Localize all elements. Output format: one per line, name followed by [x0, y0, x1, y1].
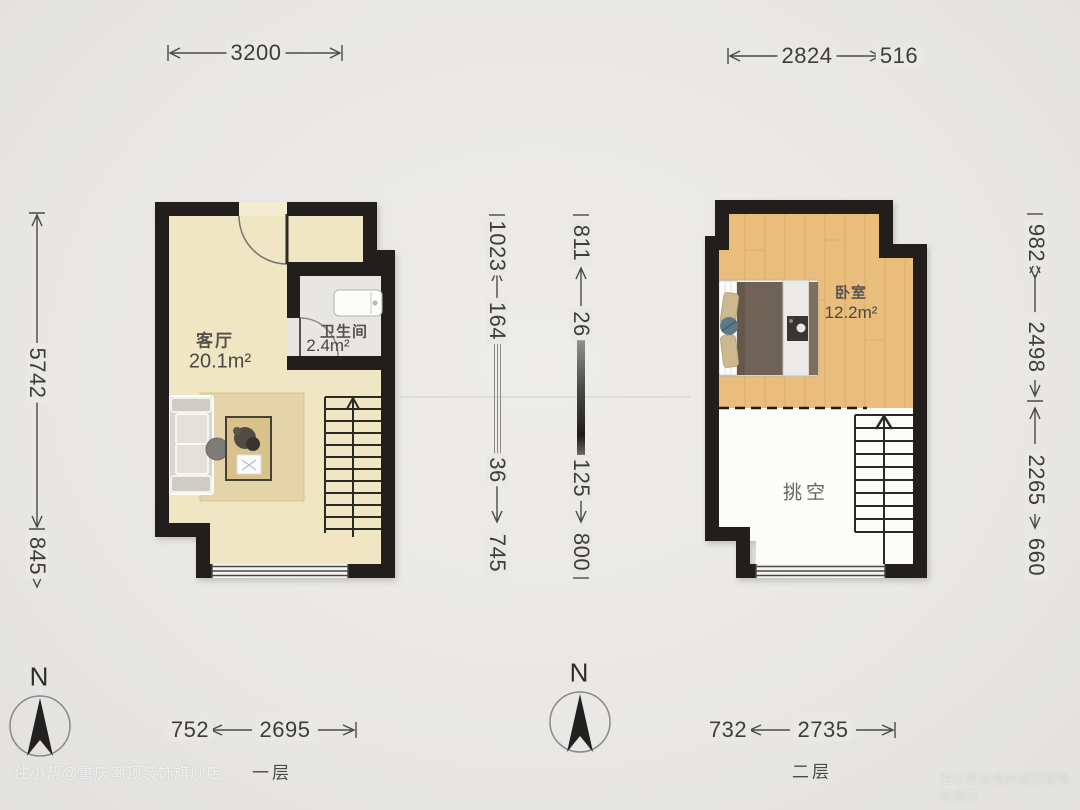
- floorplan-drawing: [0, 0, 1080, 810]
- floor2-title: 二层: [792, 758, 832, 783]
- floor2-plan-graphic: [705, 200, 927, 578]
- floorplan-page: 3200 5742 845 752 2695 1023 164 36 745 8…: [0, 0, 1080, 810]
- dim-floor1-left-lower: 845: [26, 533, 48, 579]
- bathroom-sink: [334, 290, 382, 316]
- ottoman: [206, 438, 228, 460]
- dim-floor2-bottom-width: 2735: [794, 719, 853, 741]
- floor1-plan-graphic: [155, 202, 395, 578]
- north-label-floor2: N: [570, 658, 589, 689]
- dim-floor1-top-width: 3200: [227, 42, 286, 64]
- north-needle: [27, 698, 53, 756]
- dim-mid-left-3: 36: [486, 453, 508, 486]
- dim-floor1-bottom-width: 2695: [256, 719, 315, 741]
- floor1-title: 一层: [252, 759, 292, 784]
- dim-floor1-bottom-offset: 752: [167, 719, 213, 741]
- dim-floor2-right-4: 660: [1025, 534, 1047, 580]
- floor1-window: [212, 564, 348, 578]
- dim-floor2-right-3: 2265: [1025, 451, 1047, 510]
- dim-mid-right-4: 800: [570, 529, 592, 575]
- floor2-window: [756, 564, 885, 578]
- dim-mid-right-2: 26: [570, 307, 592, 340]
- dim-mid-right-1: 811: [570, 221, 592, 266]
- watermark-bottom-left: 住小帮@重庆潮顶装饰旗舰店: [14, 762, 222, 783]
- dim-floor2-right-2: 2498: [1025, 318, 1047, 377]
- compass-floor1: [10, 696, 70, 756]
- dim-floor2-top-right: 516: [876, 45, 922, 67]
- dim-floor2-right-1: 982: [1025, 220, 1047, 266]
- bedroom-label: 卧室: [835, 282, 867, 303]
- middle-gradient-bar: [577, 334, 585, 458]
- living-room-area: 20.1m²: [189, 351, 251, 374]
- bedroom-area: 12.2m²: [825, 303, 878, 323]
- compass-floor2: [550, 692, 610, 752]
- watermark-bottom-right: 住小帮@重庆潮顶装饰旗舰店: [940, 770, 1080, 804]
- bed: [719, 280, 818, 376]
- dim-floor2-bottom-offset: 732: [705, 719, 751, 741]
- dim-mid-right-3: 125: [570, 455, 592, 501]
- void-label: 挑空: [783, 478, 829, 505]
- north-needle: [567, 694, 593, 752]
- dim-floor2-top-width: 2824: [778, 45, 837, 67]
- living-room-label: 客厅: [196, 327, 234, 352]
- north-label-floor1: N: [30, 662, 49, 693]
- dim-mid-left-2: 164: [486, 298, 508, 344]
- bathroom-area: 2.4m²: [306, 336, 349, 356]
- dim-mid-left-4: 745: [486, 530, 508, 576]
- dim-floor1-left-height: 5742: [26, 344, 48, 403]
- dim-mid-left-1: 1023: [486, 217, 508, 276]
- coffee-table: [226, 417, 271, 480]
